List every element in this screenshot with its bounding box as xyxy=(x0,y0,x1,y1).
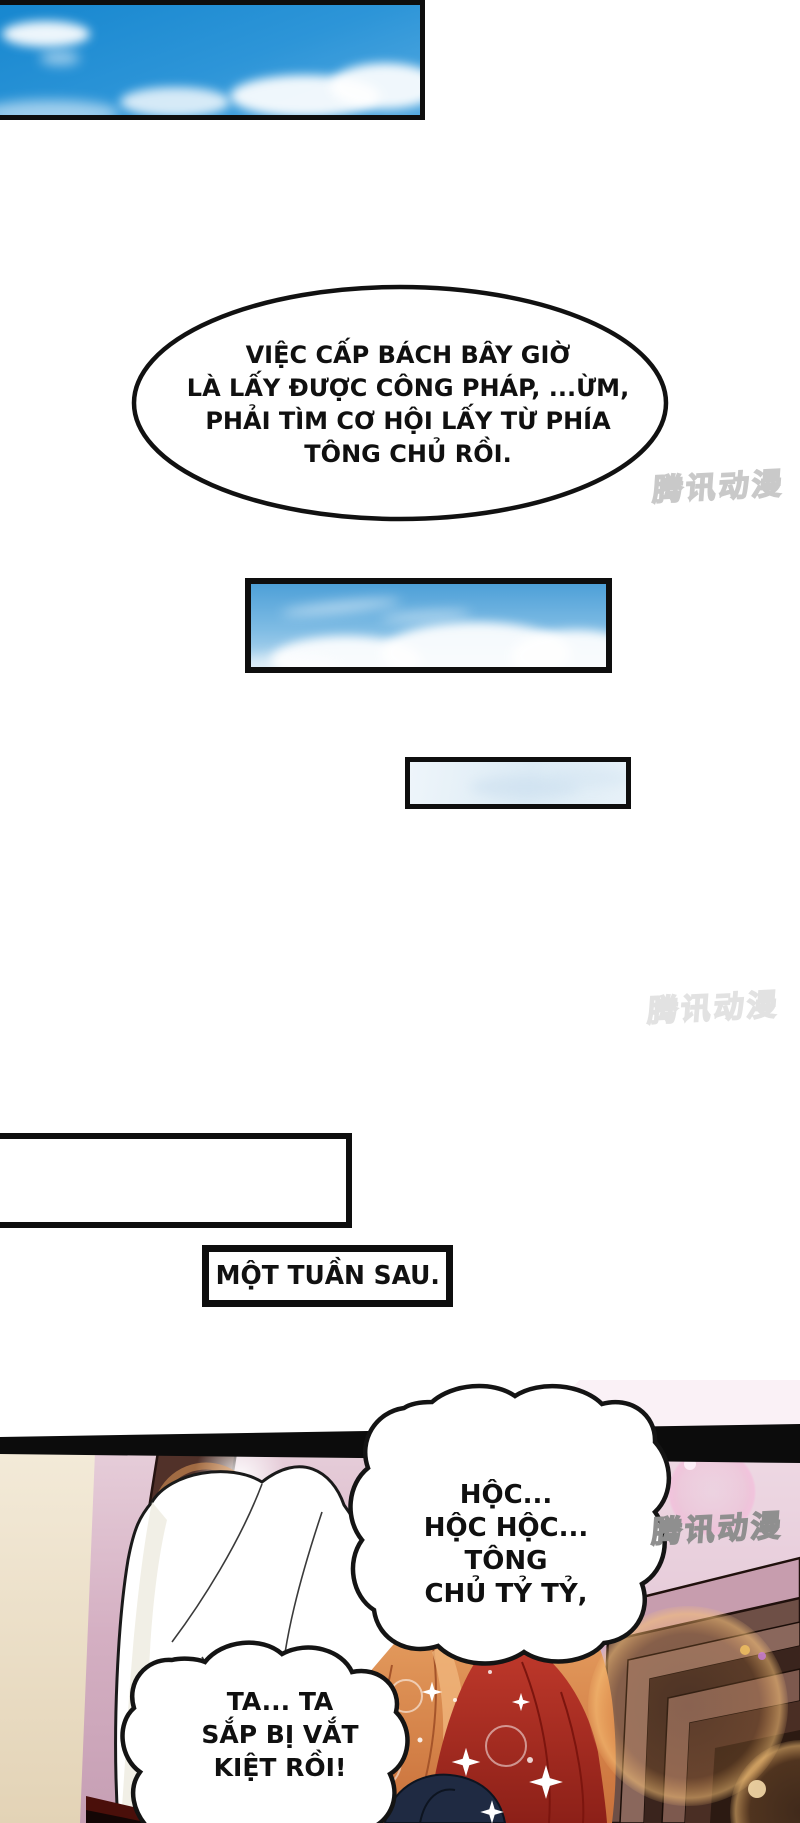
bubble-line: TA... TA xyxy=(168,1685,392,1718)
bokeh-dot xyxy=(748,1780,766,1798)
sky-panel-wide xyxy=(0,0,425,120)
bubble-text-drained: TA... TA SẮP BỊ VẮT KIỆT RỒI! xyxy=(168,1685,392,1784)
cloud xyxy=(281,596,401,618)
cloud xyxy=(550,768,630,788)
bubble-line: VIỆC CẤP BÁCH BÂY GIỜ xyxy=(135,339,681,372)
cloud xyxy=(381,609,471,623)
wall-edge-strip xyxy=(0,1452,95,1823)
bubble-line: CHỦ TỶ TỶ, xyxy=(378,1578,634,1611)
caption-box: MỘT TUẦN SAU. xyxy=(202,1245,453,1307)
cloud xyxy=(0,100,120,120)
bubble-line: LÀ LẤY ĐƯỢC CÔNG PHÁP, ...ỪM, xyxy=(135,372,681,405)
caption-text: MỘT TUẦN SAU. xyxy=(215,1261,439,1291)
sky-panel-middle xyxy=(245,578,612,673)
bubble-line: PHẢI TÌM CƠ HỘI LẤY TỪ PHÍA xyxy=(135,405,681,438)
bubble-line: KIỆT RỒI! xyxy=(168,1751,392,1784)
comic-page: VIỆC CẤP BÁCH BÂY GIỜ LÀ LẤY ĐƯỢC CÔNG P… xyxy=(0,0,800,1823)
tencent-comics-watermark: 腾讯动漫 xyxy=(647,979,782,1030)
cloud xyxy=(120,87,230,117)
bubble-text-plan: VIỆC CẤP BÁCH BÂY GIỜ LÀ LẤY ĐƯỢC CÔNG P… xyxy=(135,339,681,471)
bubble-line: HỘC... xyxy=(378,1479,634,1512)
flare-dot-purple xyxy=(758,1652,766,1660)
bubble-text-gasp: HỘC... HỘC HỘC... TÔNG CHỦ TỶ TỶ, xyxy=(378,1479,634,1611)
flare-dot-orange xyxy=(740,1645,750,1655)
bubble-line: TÔNG CHỦ RỒI. xyxy=(135,438,681,471)
tencent-comics-watermark: 腾讯动漫 xyxy=(652,458,787,509)
cloud xyxy=(2,21,90,47)
sky-panel-small xyxy=(405,757,631,809)
tencent-comics-watermark: 腾讯动漫 xyxy=(651,1500,786,1551)
empty-caption-box xyxy=(0,1133,352,1228)
bubble-line: SẮP BỊ VẮT xyxy=(168,1718,392,1751)
cloud xyxy=(40,51,80,65)
bubble-line: HỘC HỘC... TÔNG xyxy=(378,1512,634,1578)
